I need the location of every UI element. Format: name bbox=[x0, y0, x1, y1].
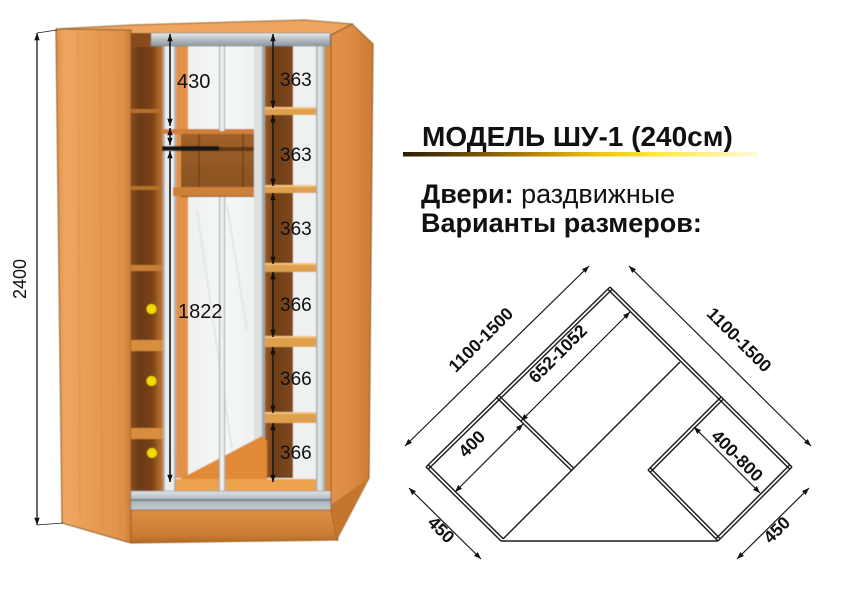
svg-text:363: 363 bbox=[280, 145, 312, 166]
svg-text:2400: 2400 bbox=[10, 259, 30, 299]
svg-text:450: 450 bbox=[759, 512, 794, 547]
svg-text:450: 450 bbox=[424, 512, 459, 547]
svg-text:430: 430 bbox=[177, 71, 210, 93]
svg-text:1100-1500: 1100-1500 bbox=[703, 303, 776, 376]
svg-text:Варианты размеров:: Варианты размеров: bbox=[421, 208, 702, 238]
svg-text:Двери: раздвижные: Двери: раздвижные bbox=[421, 179, 675, 209]
svg-text:400: 400 bbox=[454, 426, 489, 461]
svg-text:1100-1500: 1100-1500 bbox=[444, 303, 517, 376]
svg-text:366: 366 bbox=[280, 295, 312, 316]
svg-text:366: 366 bbox=[280, 443, 312, 464]
svg-text:400-800: 400-800 bbox=[707, 426, 767, 486]
svg-text:МОДЕЛЬ ШУ-1 (240см): МОДЕЛЬ ШУ-1 (240см) bbox=[422, 121, 733, 152]
svg-text:363: 363 bbox=[280, 219, 312, 240]
svg-text:1822: 1822 bbox=[178, 301, 223, 323]
svg-text:366: 366 bbox=[280, 369, 312, 390]
svg-text:363: 363 bbox=[280, 70, 312, 91]
svg-text:652-1052: 652-1052 bbox=[525, 320, 592, 387]
